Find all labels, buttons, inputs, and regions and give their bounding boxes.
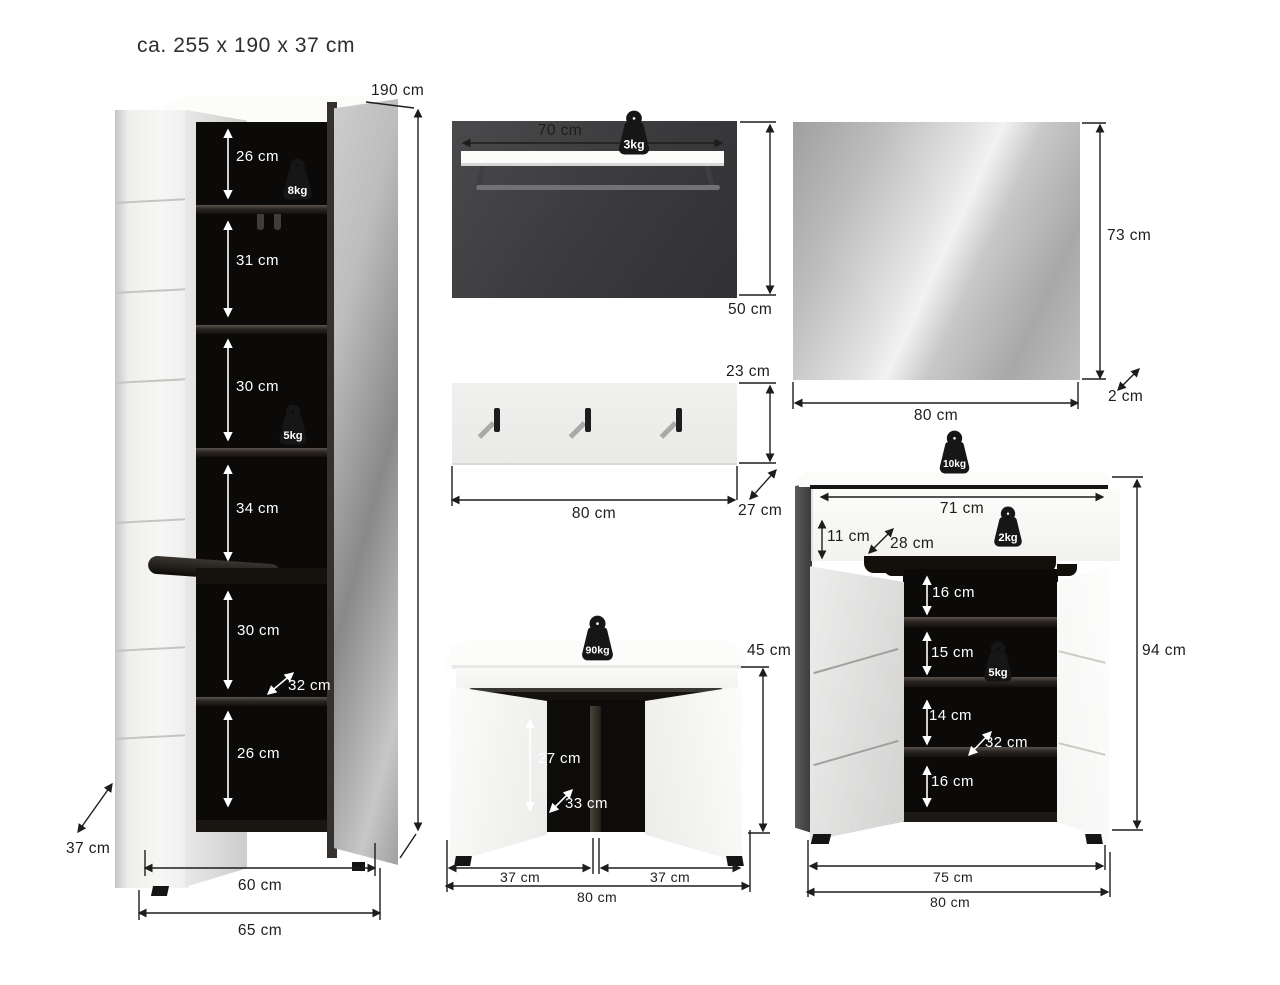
bench-width-label: 80 cm xyxy=(577,889,617,905)
shoe-cabinet-left-door xyxy=(810,564,904,841)
wardrobe-base xyxy=(196,820,338,832)
wardrobe-height-label: 190 cm xyxy=(371,82,424,100)
wardrobe-closed-door xyxy=(115,110,189,888)
bench-divider xyxy=(590,706,601,832)
wardrobe-foot xyxy=(352,862,365,871)
wardrobe-rail-hook xyxy=(274,214,281,230)
wardrobe-interior xyxy=(196,122,338,832)
wardrobe-rail-hook xyxy=(257,214,264,230)
ext-line xyxy=(400,834,416,858)
wardrobe-depth-label: 37 cm xyxy=(66,840,110,858)
shoe-shelf4-label: 16 cm xyxy=(931,773,974,790)
page-title: ca. 255 x 190 x 37 cm xyxy=(137,34,355,58)
bench-left-door xyxy=(450,686,547,863)
wall-shelf-hanging-rail xyxy=(476,185,720,190)
shoe-drawer-height-label: 11 cm xyxy=(827,528,870,546)
shoe-cabinet-shelf xyxy=(898,617,1058,627)
wardrobe-shelf xyxy=(196,697,338,706)
shoe-cabinet-right-door xyxy=(1057,564,1109,841)
wall-shelf-height-label: 50 cm xyxy=(728,301,772,319)
wall-shelf-back-panel xyxy=(452,121,737,298)
bench-inner-height-label: 27 cm xyxy=(538,750,581,767)
wardrobe-section4-label: 34 cm xyxy=(236,500,279,517)
wardrobe-section6-label: 26 cm xyxy=(237,745,280,762)
weight-3kg-icon: 3kg xyxy=(611,110,657,158)
weight-label: 2kg xyxy=(998,532,1017,544)
shoe-door-grip-notch xyxy=(1057,564,1077,576)
bench-right-door xyxy=(645,686,742,863)
weight-8kg-icon: 8kg xyxy=(276,158,319,202)
wardrobe-outer-width-label: 65 cm xyxy=(238,922,282,940)
weight-label: 10kg xyxy=(943,459,966,470)
weight-2kg-icon: 2kg xyxy=(987,506,1029,549)
mirror xyxy=(793,122,1080,380)
shoe-shelf2-label: 15 cm xyxy=(931,644,974,661)
mirror-depth-label: 2 cm xyxy=(1108,388,1143,406)
wardrobe-rail-shelf xyxy=(196,568,338,584)
coat-rack-height-label: 23 cm xyxy=(726,363,770,381)
weight-5kg-icon: 5kg xyxy=(272,404,314,447)
bench-left-width-label: 37 cm xyxy=(500,869,540,885)
bench-inner-depth-label: 33 cm xyxy=(565,795,608,812)
wall-shelf-board xyxy=(461,151,724,166)
shoe-drawer-width-label: 71 cm xyxy=(940,500,984,518)
shoe-outer-width-label: 80 cm xyxy=(930,894,970,910)
weight-label: 90kg xyxy=(585,644,609,656)
shoe-cabinet-interior xyxy=(903,569,1058,822)
shoe-drawer-depth-label: 28 cm xyxy=(890,535,934,553)
coat-rack-width-label: 80 cm xyxy=(572,505,616,523)
weight-label: 3kg xyxy=(623,137,644,151)
wardrobe-mirror-door xyxy=(334,99,398,865)
bench-foot xyxy=(454,856,472,866)
wall-shelf-width-label: 70 cm xyxy=(538,122,582,140)
weight-label: 5kg xyxy=(988,667,1007,679)
weight-label: 5kg xyxy=(283,430,302,442)
wardrobe-section3-label: 30 cm xyxy=(236,378,279,395)
mirror-depth-dim xyxy=(1118,369,1139,390)
wardrobe-section5-label: 30 cm xyxy=(237,622,280,639)
shoe-inner-depth-label: 32 cm xyxy=(985,734,1028,751)
wardrobe-inner-depth-label: 32 cm xyxy=(288,677,331,694)
shoe-door-grip-notch xyxy=(884,564,904,576)
wardrobe-shelf xyxy=(196,448,338,457)
shoe-shelf3-label: 14 cm xyxy=(929,707,972,724)
wardrobe-inner-width-label: 60 cm xyxy=(238,877,282,895)
bench-height-label: 45 cm xyxy=(747,642,791,660)
shoe-cabinet-shelf xyxy=(898,747,1058,757)
coat-hook-icon xyxy=(494,408,500,432)
bench-right-width-label: 37 cm xyxy=(650,869,690,885)
coat-rack-depth-label: 27 cm xyxy=(738,502,782,520)
coat-rack-depth-dim xyxy=(750,470,776,499)
shoe-height-label: 94 cm xyxy=(1142,642,1186,660)
mirror-height-label: 73 cm xyxy=(1107,227,1151,245)
wardrobe-foot xyxy=(151,886,169,896)
shoe-cabinet-base xyxy=(903,812,1058,822)
weight-label: 8kg xyxy=(288,185,308,197)
bench-foot xyxy=(726,856,744,866)
shoe-inner-width-label: 75 cm xyxy=(933,869,973,885)
shoe-cabinet-foot xyxy=(1085,834,1103,844)
wardrobe-shelf xyxy=(196,205,338,214)
coat-hook-icon xyxy=(585,408,591,432)
shoe-cabinet-side-panel xyxy=(795,481,812,833)
furniture-dimension-diagram: ca. 255 x 190 x 37 cm xyxy=(0,0,1280,985)
wardrobe-depth-dim xyxy=(78,784,112,832)
coat-hook-icon xyxy=(676,408,682,432)
wardrobe-shelf xyxy=(196,325,338,334)
mirror-width-label: 80 cm xyxy=(914,407,958,425)
wardrobe-section2-label: 31 cm xyxy=(236,252,279,269)
weight-5kg-shelf-icon: 5kg xyxy=(977,641,1019,684)
shoe-shelf1-label: 16 cm xyxy=(932,584,975,601)
weight-90kg-icon: 90kg xyxy=(574,615,621,664)
wardrobe-section1-label: 26 cm xyxy=(236,148,279,165)
shoe-cabinet-foot xyxy=(811,834,831,844)
weight-10kg-icon: 10kg xyxy=(932,430,977,477)
